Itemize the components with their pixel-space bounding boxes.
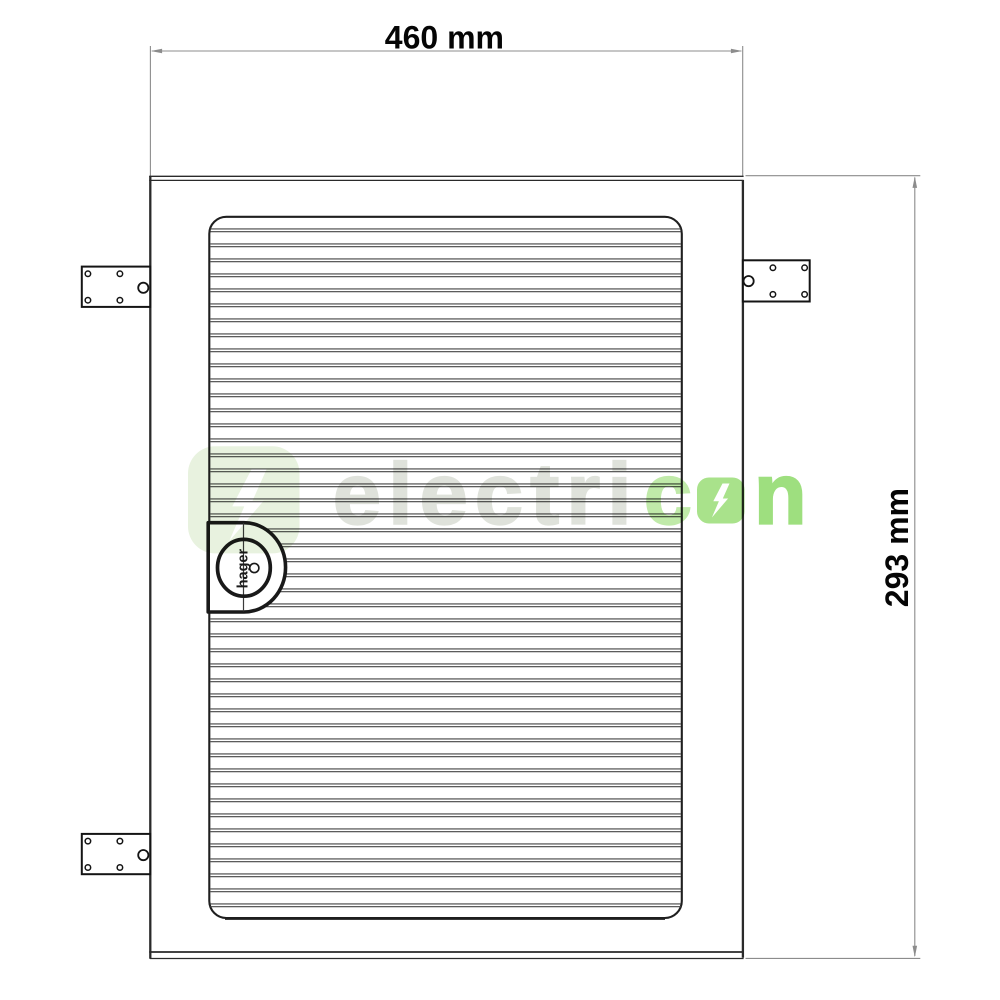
- svg-text:electri: electri: [333, 447, 639, 543]
- svg-text:460 mm: 460 mm: [385, 19, 504, 55]
- svg-text:hager: hager: [236, 549, 252, 589]
- svg-text:293 mm: 293 mm: [879, 488, 915, 607]
- svg-text:c: c: [644, 447, 692, 543]
- svg-text:n: n: [754, 447, 807, 543]
